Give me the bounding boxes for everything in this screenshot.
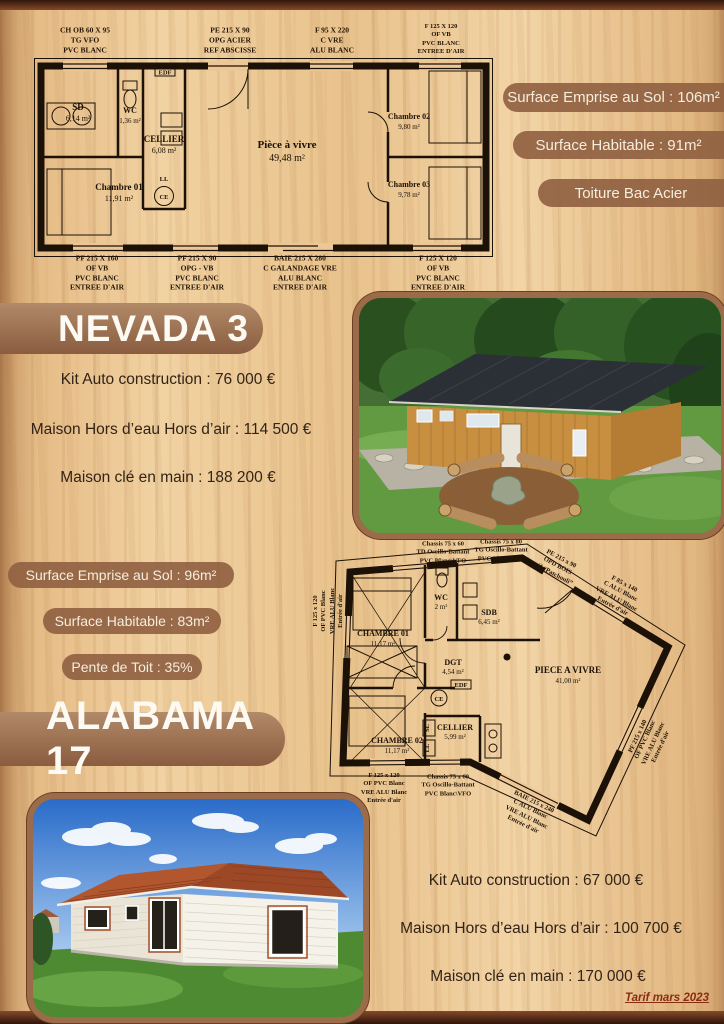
svg-text:PIECE A VIVRE: PIECE A VIVRE — [535, 665, 601, 675]
svg-text:CELLIER: CELLIER — [437, 723, 473, 732]
svg-text:9,78 m²: 9,78 m² — [398, 191, 420, 199]
price-kit-alabama: Kit Auto construction : 67 000 € — [429, 872, 644, 890]
price-kit-nevada: Kit Auto construction : 76 000 € — [61, 371, 276, 389]
plan-window-label: F 125 X 120OF VBPVC BLANCENTREE D'AIR — [418, 23, 465, 57]
tag-ce: CE — [159, 194, 168, 201]
nevada-title: NEVADA 3 — [58, 308, 249, 350]
plan-window-label: F 95 X 220C VREALU BLANC — [310, 25, 354, 54]
plan-window-label: BAIE 215 X 280C GALANDAGE VREALU BLANCEN… — [263, 254, 337, 293]
svg-text:9,80 m²: 9,80 m² — [398, 123, 420, 131]
svg-text:SDB: SDB — [481, 608, 497, 617]
plan-window-label: PF 215 X 160OF VBPVC BLANCENTREE D'AIR — [70, 254, 124, 293]
badge-pente-toit-alabama: Pente de Toit : 35% — [62, 654, 202, 680]
svg-text:CHAMBRE 01: CHAMBRE 01 — [357, 629, 409, 638]
svg-text:CHAMBRE 02: CHAMBRE 02 — [371, 736, 423, 745]
plan-window-label: F 125 x 120OF PVC BlancVRE ALU BlancEntr… — [361, 772, 407, 806]
plan-window-label: Chassis 75 x 60TG Oscillo-BattantPVC Bla… — [421, 773, 474, 798]
tag-edf: EDF — [455, 682, 468, 689]
price-clemain-nevada: Maison clé en main : 188 200 € — [60, 469, 275, 487]
tarif-note: Tarif mars 2023 — [625, 992, 709, 1004]
badge-label: Surface Emprise au Sol : 96m² — [26, 567, 217, 583]
plan-window-label: F 125 X 120OF VBPVC BLANCENTREE D'AIR — [411, 254, 465, 293]
price-horsdeau-alabama: Maison Hors d’eau Hors d’air : 100 700 € — [400, 920, 682, 938]
alabama-title-pill: ALABAMA 17 — [0, 712, 285, 766]
alabama-house-photo — [27, 793, 369, 1023]
svg-text:SD: SD — [72, 102, 84, 112]
badge-label: Toiture Bac Acier — [575, 185, 688, 202]
badge-label: Surface Habitable : 83m² — [55, 613, 210, 629]
nevada-floor-plan: EDF LL CE SD6,14 m² WC1,36 m² CELLIER6,0… — [33, 57, 494, 258]
badge-surface-emprise-nevada: Surface Emprise au Sol : 106m² — [503, 83, 724, 112]
room-labels: SD6,14 m² WC1,36 m² CELLIER6,08 m² Chamb… — [66, 102, 430, 203]
badge-label: Surface Habitable : 91m² — [536, 137, 702, 154]
brochure-page: CH OB 60 X 95TG VFOPVC BLANC PE 215 X 90… — [0, 0, 724, 1024]
svg-text:6,45 m²: 6,45 m² — [478, 618, 500, 626]
tag-edf: EDF — [159, 70, 172, 77]
svg-text:Chambre 03: Chambre 03 — [388, 180, 430, 189]
svg-text:5,99 m²: 5,99 m² — [444, 733, 466, 741]
svg-text:11,17 m²: 11,17 m² — [385, 747, 410, 755]
svg-text:41,00 m²: 41,00 m² — [555, 677, 580, 685]
price-horsdeau-nevada: Maison Hors d’eau Hors d’air : 114 500 € — [31, 421, 312, 439]
tag-ll: LL — [424, 743, 431, 752]
nevada-title-pill: NEVADA 3 — [0, 303, 263, 354]
svg-text:6,14 m²: 6,14 m² — [66, 114, 91, 123]
plan-window-label: Chassis 75 x 60TD Oscillo-BattantPVC Bla… — [417, 540, 470, 565]
tag-ce: CE — [434, 696, 443, 703]
tag-sl: SL — [424, 723, 431, 732]
svg-text:WC: WC — [123, 106, 137, 115]
badge-label: Pente de Toit : 35% — [71, 659, 192, 675]
badge-toiture-nevada: Toiture Bac Acier — [538, 179, 724, 207]
price-clemain-alabama: Maison clé en main : 170 000 € — [430, 968, 645, 986]
svg-text:11,91 m²: 11,91 m² — [105, 194, 134, 203]
plan-walls — [35, 59, 493, 257]
plan-window-label: Chassis 75 x 80TG Oscillo-BattantPVC Bla… — [474, 538, 527, 563]
svg-text:CELLIER: CELLIER — [144, 134, 185, 144]
plan-window-label: F 125 x 120OF PVC BlancVRE ALU BlancEntr… — [312, 588, 346, 634]
alabama-title: ALABAMA 17 — [46, 694, 285, 784]
nevada-house-photo — [353, 292, 724, 539]
alabama-photo-scene — [33, 799, 363, 1017]
plan-window-label: CH OB 60 X 95TG VFOPVC BLANC — [60, 25, 110, 54]
svg-text:Chambre 02: Chambre 02 — [388, 112, 430, 121]
plan-window-label: PF 215 X 90OPG - VBPVC BLANCENTREE D'AIR — [170, 254, 224, 293]
svg-text:2 m²: 2 m² — [435, 603, 448, 611]
svg-text:4,54 m²: 4,54 m² — [442, 668, 464, 676]
badge-surface-habitable-alabama: Surface Habitable : 83m² — [43, 608, 221, 634]
svg-text:6,08 m²: 6,08 m² — [152, 146, 177, 155]
tag-ll: LL — [160, 176, 169, 183]
fire-pit — [439, 458, 581, 525]
svg-text:11,17 m²: 11,17 m² — [371, 640, 396, 648]
badge-surface-emprise-alabama: Surface Emprise au Sol : 96m² — [8, 562, 234, 588]
svg-text:DGT: DGT — [444, 658, 462, 667]
badge-label: Surface Emprise au Sol : 106m² — [507, 89, 720, 106]
nevada-photo-scene — [359, 298, 721, 533]
top-edge-bar — [0, 0, 724, 10]
svg-text:WC: WC — [434, 593, 448, 602]
svg-text:49,48 m²: 49,48 m² — [269, 153, 305, 164]
svg-text:Chambre 01: Chambre 01 — [95, 182, 143, 192]
svg-text:Pièce à vivre: Pièce à vivre — [257, 139, 316, 151]
plan-window-label: PE 215 X 90OPG ACIERREF ABSCISSE — [204, 25, 256, 54]
badge-surface-habitable-nevada: Surface Habitable : 91m² — [513, 131, 724, 159]
svg-text:1,36 m²: 1,36 m² — [119, 117, 141, 125]
